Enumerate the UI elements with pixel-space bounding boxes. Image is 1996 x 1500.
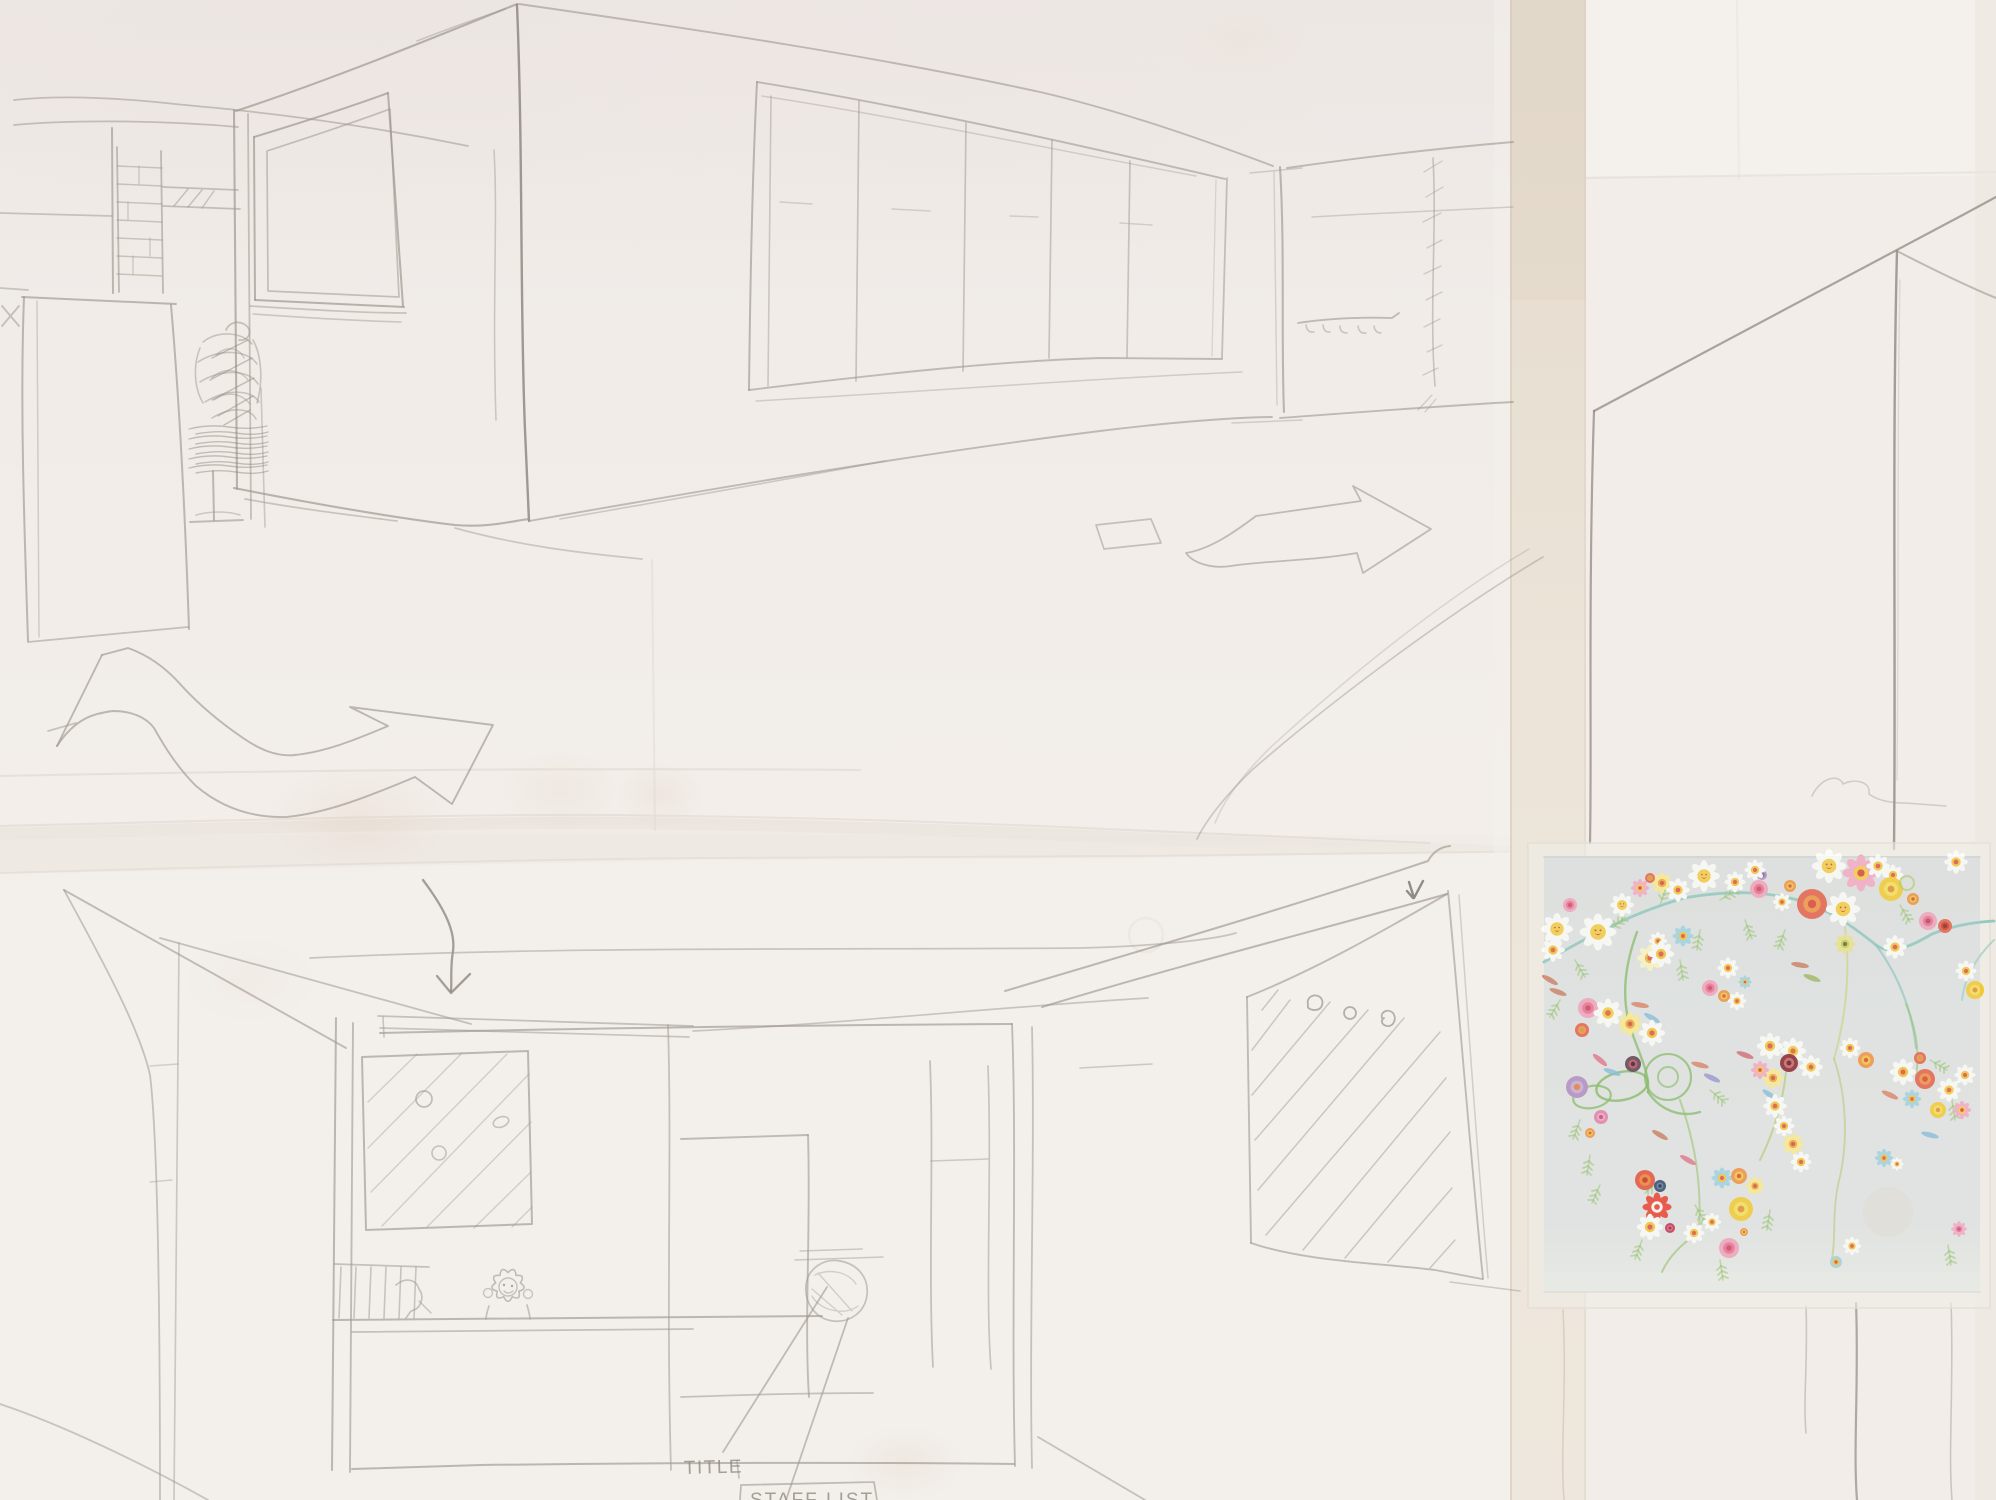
svg-text:TITLE: TITLE bbox=[684, 1456, 744, 1479]
svg-text:STAFF LIST: STAFF LIST bbox=[750, 1490, 874, 1500]
